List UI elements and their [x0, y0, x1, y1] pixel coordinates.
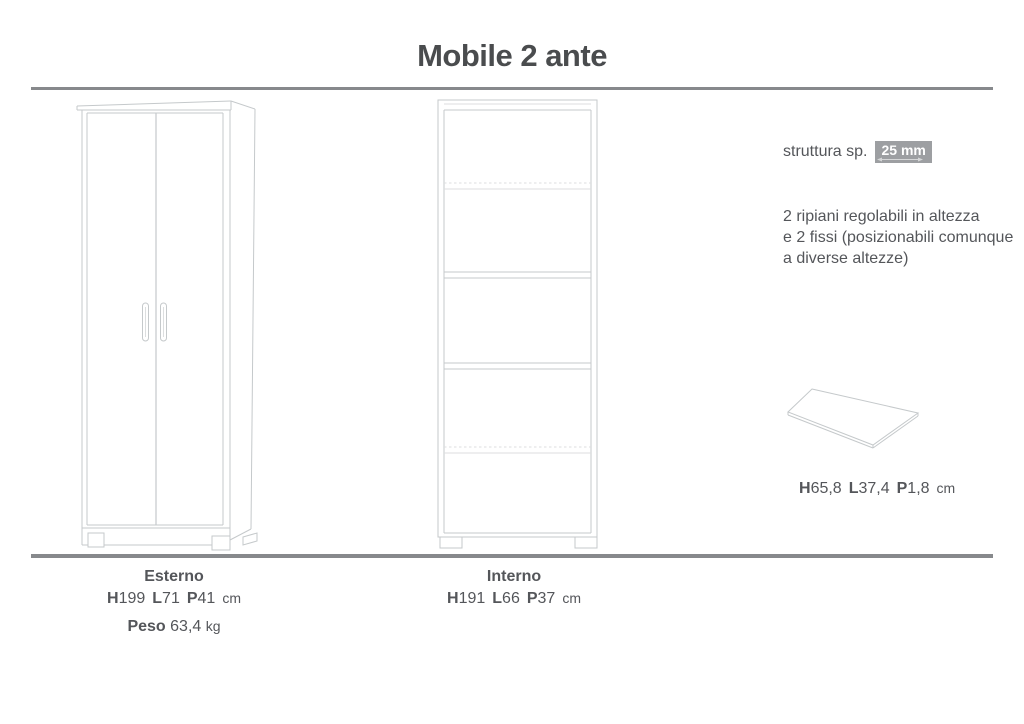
dimension-arrow-icon — [877, 157, 923, 162]
interno-dim-l: L66 — [492, 590, 520, 607]
shelf-dim-h: H65,8 — [799, 480, 842, 497]
page-title: Mobile 2 ante — [0, 38, 1024, 74]
shelves-note-line3: a diverse altezze) — [783, 248, 1013, 269]
cabinet-exterior-svg — [66, 92, 266, 562]
shelves-note: 2 ripiani regolabili in altezza e 2 fiss… — [783, 206, 1013, 269]
title-divider — [31, 87, 993, 90]
shelf-dim-p: P1,8 — [897, 480, 930, 497]
peso-unit: kg — [206, 618, 221, 634]
interno-dim-unit: cm — [562, 590, 581, 606]
esterno-dim-unit: cm — [222, 590, 241, 606]
shelf-panel-dimensions: H65,8L37,4P1,8cm — [799, 480, 955, 498]
cabinet-feet — [88, 533, 257, 550]
interior-feet — [440, 537, 597, 548]
interno-dim-p: P37 — [527, 590, 555, 607]
door-handle-left — [143, 303, 149, 341]
interno-dim-h: H191 — [447, 590, 485, 607]
thickness-value: 25 mm — [881, 142, 925, 158]
cabinet-side-panel — [230, 109, 255, 540]
interno-section: Interno H191L66P37cm — [430, 568, 598, 608]
interno-dimensions: H191L66P37cm — [430, 590, 598, 608]
esterno-dim-h: H199 — [107, 590, 145, 607]
cabinet-interior-drawing — [428, 92, 603, 562]
shelf-panel-svg — [775, 382, 925, 452]
thickness-badge: 25 mm — [875, 141, 931, 163]
cabinet-top-panel — [77, 101, 255, 110]
fixed-shelf-1 — [444, 272, 591, 278]
esterno-section: Esterno H199L71P41cm Peso 63,4 kg — [90, 568, 258, 636]
structure-thickness-row: struttura sp. 25 mm — [783, 141, 932, 163]
cabinet-doors — [87, 113, 223, 525]
esterno-dim-p: P41 — [187, 590, 215, 607]
footer-divider — [31, 554, 993, 558]
peso-label: Peso — [127, 618, 165, 635]
esterno-dim-l: L71 — [152, 590, 180, 607]
peso-value: 63,4 — [170, 618, 201, 635]
shelves-note-line1: 2 ripiani regolabili in altezza — [783, 206, 1013, 227]
fixed-shelf-2 — [444, 363, 591, 369]
door-handle-right — [161, 303, 167, 341]
structure-label: struttura sp. — [783, 143, 867, 161]
cabinet-exterior-drawing — [66, 92, 266, 567]
adjustable-shelf-2 — [444, 447, 591, 453]
shelf-panel-drawing — [775, 382, 925, 457]
shelf-dim-l: L37,4 — [849, 480, 890, 497]
shelf-dim-unit: cm — [937, 480, 956, 496]
adjustable-shelf-1 — [444, 183, 591, 189]
peso-line: Peso 63,4 kg — [90, 618, 258, 636]
shelves-note-line2: e 2 fissi (posizionabili comunque — [783, 227, 1013, 248]
interior-frame — [438, 100, 597, 537]
esterno-heading: Esterno — [90, 568, 258, 586]
interno-heading: Interno — [430, 568, 598, 586]
esterno-dimensions: H199L71P41cm — [90, 590, 258, 608]
cabinet-interior-svg — [428, 92, 603, 557]
